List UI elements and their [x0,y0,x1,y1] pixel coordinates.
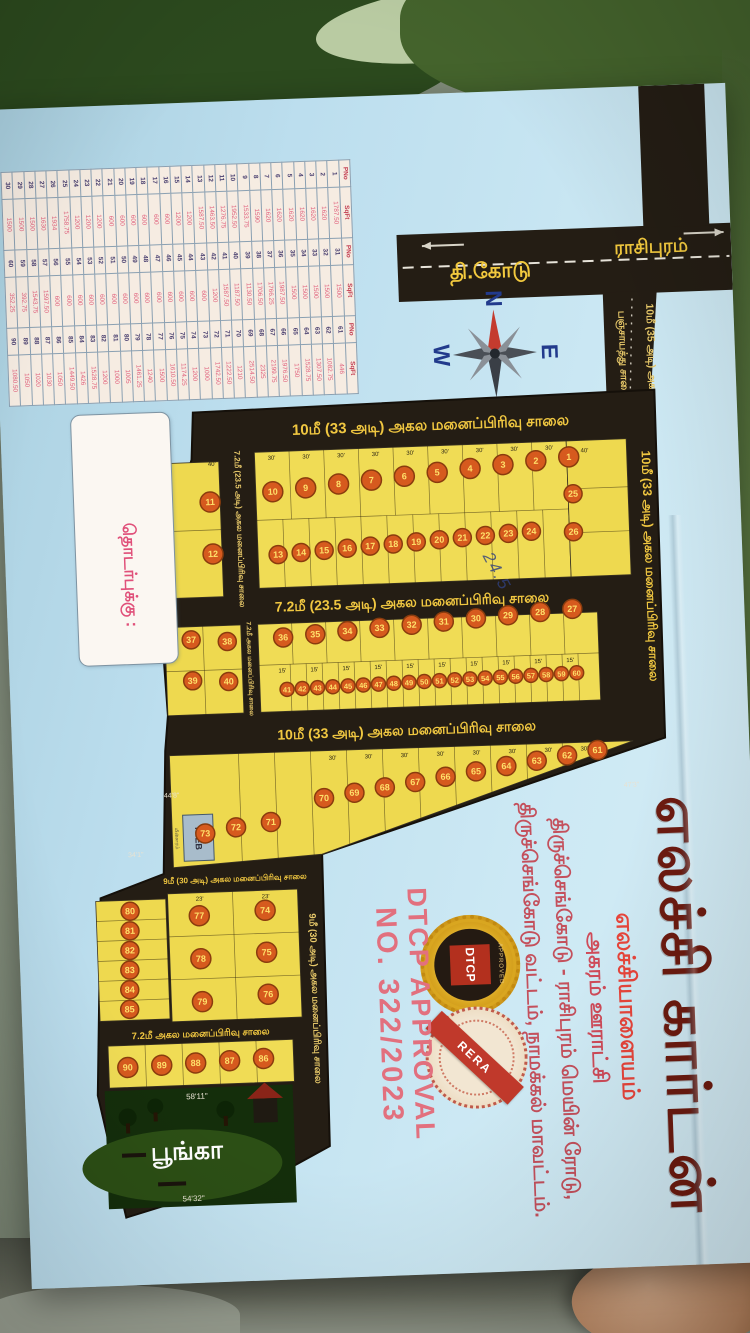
cell-sqft: 446 [334,343,347,394]
cell-plot-no: 59 [15,250,27,277]
cell-sqft: 600 [151,272,164,323]
cell-sqft: 1620 [261,190,274,241]
plot-number: 14 [296,547,306,557]
cell-sqft: 1952.50 [227,191,240,242]
plot-number: 34 [342,626,352,636]
cell-sqft: 1200 [182,192,195,243]
cell-plot-no: 86 [52,326,64,353]
cell-sqft: 600 [95,274,108,325]
plot-dim: 30' [337,453,345,459]
plot-dim: 40' [208,462,216,468]
plot-dim: 15' [406,664,414,670]
rera-seal-icon: RERA [424,1005,530,1111]
cell-sqft: 1449.50 [64,353,77,404]
cell-sqft: 1050 [19,355,32,406]
plot-number: 88 [191,1058,201,1068]
plot-number: 47 [374,680,383,689]
cell-sqft: 1200 [171,193,184,244]
plot-number: 72 [231,822,241,832]
plot-number: 90 [123,1062,133,1072]
plot-number: 10 [268,487,278,497]
plot-dim: 15' [470,661,478,667]
plot-number: 78 [196,954,206,964]
plot-number: 82 [125,945,135,955]
cell-plot-no: 10 [226,164,238,191]
cell-sqft: 1187.50 [230,269,243,320]
plot-number: 9 [303,483,308,493]
plot-number: 19 [411,537,421,547]
plot-number: 53 [466,675,475,684]
plot-number: 44 [328,683,337,692]
cell-plot-no: 7 [260,163,272,190]
plot-number: 21 [457,532,467,542]
cell-sqft: 1500 [331,265,344,316]
plot-number: 59 [557,669,566,678]
cell-sqft: 1307.50 [311,344,324,395]
cell-sqft: 1528.75 [300,344,313,395]
cell-plot-no: 33 [308,239,320,266]
cell-plot-no: 56 [49,248,61,275]
park-dim-bottom: 54'32" [182,1194,205,1204]
cell-plot-no: 34 [296,239,308,266]
cell-sqft: 1620 [294,188,307,239]
cell-sqft: 1587.50 [193,192,206,243]
cell-plot-no: 80 [119,324,131,351]
cell-sqft: 1528.75 [87,352,100,403]
cell-plot-no: 76 [164,322,176,349]
cell-sqft: 600 [196,270,209,321]
plot-number: 84 [125,985,135,995]
cell-sqft: 600 [137,194,150,245]
cell-plot-no: 47 [150,245,162,272]
cell-plot-no: 6 [271,162,283,189]
cell-sqft: 600 [162,271,175,322]
plot-number: 40 [224,676,234,686]
contact-label: தொடர்புக்கு : [115,495,143,656]
cell-sqft: 1620 [306,188,319,239]
compass-e: E [537,343,564,359]
plot-dim: 23' [196,897,204,903]
cell-plot-no: 28 [24,171,36,198]
cell-sqft: 1500 [25,198,38,249]
plot-dim: 15' [342,666,350,672]
cell-sqft: 1000 [109,351,122,402]
cell-sqft: 600 [106,273,119,324]
cell-plot-no: 55 [60,248,72,275]
cell-sqft: 1500 [2,199,15,250]
plot-table: PNoSqFtPNoSqFtPNoSqFt11787.5031150061446… [0,159,358,407]
plot-number: 57 [527,671,536,680]
plot-dim: 30' [476,448,484,454]
cell-sqft: 1005 [120,351,133,402]
plot-number: 22 [480,530,490,540]
cell-sqft: 1500 [309,266,322,317]
cell-sqft: 600 [185,270,198,321]
plot-number: 50 [420,677,429,686]
cell-plot-no: 18 [136,167,148,194]
cell-sqft: 1610.50 [165,349,178,400]
cell-plot-no: 12 [204,165,216,192]
cell-plot-no: 90 [7,328,19,355]
table-header: PNo [341,238,353,265]
cell-sqft: 1620 [283,189,296,240]
cell-plot-no: 66 [277,318,289,345]
cell-sqft: 1533.75 [238,190,251,241]
dtcp-seal-text: DTCP [450,944,491,985]
cell-plot-no: 74 [187,321,199,348]
park: பூங்கா 58'11" 54'32" [80,1081,297,1210]
cell-sqft: 352.25 [5,277,18,328]
plot-number: 17 [365,541,375,551]
plot-number: 29 [503,610,513,620]
cell-plot-no: 52 [94,247,106,274]
plot-number: 15 [319,545,329,555]
cell-sqft: 1200 [92,196,105,247]
cell-plot-no: 87 [41,327,53,354]
cell-sqft: 1500 [154,350,167,401]
cell-plot-no: 70 [232,320,244,347]
plot-dim: 30' [268,456,276,462]
cell-sqft: 1766.25 [264,268,277,319]
cell-sqft: 600 [50,275,63,326]
plot-dim: 15' [310,667,318,673]
plot-number: 37 [186,635,196,645]
cell-plot-no: 73 [198,321,210,348]
cell-plot-no: 31 [330,238,342,265]
cell-sqft: 1934 [47,197,60,248]
boundary-dim: 44'8" [164,792,180,800]
cell-plot-no: 78 [142,323,154,350]
cell-plot-no: 60 [4,250,16,277]
cell-sqft: 1463.50 [205,192,218,243]
cell-sqft: 1500 [297,266,310,317]
cell-sqft: 1200 [70,197,83,248]
plot-number: 75 [261,947,271,957]
cell-plot-no: 46 [161,244,173,271]
plot-number: 32 [406,620,416,630]
cell-sqft: 1240 [143,350,156,401]
cell-plot-no: 32 [319,238,331,265]
cell-sqft: 1620 [317,188,330,239]
cell-plot-no: 21 [102,168,114,195]
cell-plot-no: 53 [83,247,95,274]
cell-plot-no: 57 [38,249,50,276]
table-header: PNo [344,316,356,343]
cell-plot-no: 30 [1,172,13,199]
cell-sqft: 2325 [255,346,268,397]
cell-plot-no: 64 [299,317,311,344]
cell-plot-no: 82 [97,325,109,352]
plot-number: 6 [402,471,407,481]
plot-number: 81 [125,926,135,936]
table-header: PNo [338,160,350,187]
cell-plot-no: 17 [147,167,159,194]
plot-dim: 15' [502,660,510,666]
cell-sqft: 392.75 [16,277,29,328]
compass-w: W [429,344,456,367]
cell-sqft: 1200 [81,196,94,247]
plot-number: 3 [500,460,505,470]
cell-sqft: 1130.50 [241,268,254,319]
cell-sqft: 1210 [233,347,246,398]
plot-number: 13 [273,549,283,559]
plot-number: 86 [258,1053,268,1063]
plot-number: 28 [535,607,545,617]
cell-sqft: 1500 [320,265,333,316]
plot-number: 39 [187,676,197,686]
cell-plot-no: 19 [125,168,137,195]
cell-plot-no: 51 [105,246,117,273]
plot-number: 54 [481,674,490,683]
cell-plot-no: 37 [263,241,275,268]
plot-dim: 30' [329,756,337,762]
cell-sqft: 1082.75 [323,343,336,394]
cell-plot-no: 27 [35,171,47,198]
cell-plot-no: 11 [215,164,227,191]
park-dim-top: 58'11" [186,1092,208,1102]
plot-number: 60 [572,669,581,678]
cell-plot-no: 85 [63,326,75,353]
cell-plot-no: 2 [316,161,328,188]
cell-plot-no: 54 [71,248,83,275]
table-header: SqFt [345,343,358,394]
cell-sqft: 1587.50 [219,269,232,320]
plot-number: 7 [369,475,374,485]
cell-plot-no: 4 [293,161,305,188]
plot-number: 1 [566,452,571,462]
plot-number: 25 [568,489,578,499]
access-road-upper [638,84,709,228]
cell-sqft: 1543.75 [28,276,41,327]
plot-number: 27 [567,604,577,614]
cell-plot-no: 25 [57,170,69,197]
cell-plot-no: 35 [285,240,297,267]
cell-plot-no: 8 [249,163,261,190]
cell-plot-no: 3 [305,161,317,188]
cell-plot-no: 68 [254,319,266,346]
plot-number: 70 [319,793,329,803]
cell-plot-no: 79 [131,323,143,350]
cell-sqft: 600 [129,272,142,323]
cell-plot-no: 72 [209,321,221,348]
plot-number: 48 [389,679,398,688]
cell-plot-no: 44 [184,243,196,270]
cell-sqft: 1050 [53,353,66,404]
plot-number: 42 [298,684,307,693]
cell-plot-no: 40 [229,242,241,269]
cell-sqft: 1174.25 [177,349,190,400]
plot-number: 18 [388,539,398,549]
layout-document: தி.கோடு ராசிபுரம் 10மீ (35 அடி) அகல பஞ்ச… [0,83,750,1289]
table-header: SqFt [339,187,352,238]
cell-sqft: 1742.50 [210,348,223,399]
cell-sqft: 600 [160,193,173,244]
cell-plot-no: 62 [322,316,334,343]
plot-number: 23 [503,528,513,538]
cell-sqft: 600 [126,195,139,246]
plot-number: 4 [467,463,472,473]
approval-text: DTCP APPROVAL NO. 322/2023 [363,756,446,1273]
cell-plot-no: 89 [18,328,30,355]
plot-dim: 30' [545,445,553,451]
cell-plot-no: 88 [29,327,41,354]
cell-plot-no: 43 [195,243,207,270]
cell-sqft: 1500 [13,199,26,250]
road-label-rasipuram: ராசிபுரம் [614,235,689,259]
plot-number: 38 [222,636,232,646]
plot-number: 85 [124,1004,134,1014]
plot-number: 16 [342,543,352,553]
cell-plot-no: 77 [153,323,165,350]
cell-plot-no: 26 [46,170,58,197]
plot-number: 83 [125,965,135,975]
plot-number: 87 [224,1056,234,1066]
boundary-dim: 34'1" [128,852,144,860]
cell-plot-no: 20 [114,168,126,195]
plot-number: 49 [405,678,414,687]
cell-sqft: 1597.50 [39,276,52,327]
cell-plot-no: 45 [173,244,185,271]
cell-sqft: 1461.25 [132,350,145,401]
plot-number: 55 [496,673,505,682]
cell-plot-no: 81 [108,324,120,351]
cell-sqft: 1200 [98,352,111,403]
cell-sqft: 1758.75 [58,197,71,248]
cell-plot-no: 23 [80,169,92,196]
cell-plot-no: 50 [116,246,128,273]
cell-sqft: 1706.50 [252,268,265,319]
plot-number: 58 [542,670,551,679]
plot-dim: 30' [372,452,380,458]
cell-plot-no: 41 [218,242,230,269]
plot-dim: 30' [406,451,414,457]
cell-plot-no: 84 [74,325,86,352]
plot-number: 41 [283,685,292,694]
cell-sqft: 1222.50 [221,347,234,398]
plot-number: 45 [344,682,353,691]
plot-number: 73 [200,828,210,838]
cell-sqft: 1590 [250,190,263,241]
cell-sqft: 1426 [75,352,88,403]
cell-sqft: 1000 [199,348,212,399]
plot-number: 74 [260,905,270,915]
plot-number: 51 [435,676,444,685]
plot-number: 12 [208,549,218,559]
plot-number: 2 [533,456,538,466]
cell-plot-no: 36 [274,240,286,267]
cell-plot-no: 14 [181,165,193,192]
plot-number: 33 [374,623,384,633]
cell-sqft: 1987.50 [275,267,288,318]
cell-plot-no: 58 [27,249,39,276]
cell-plot-no: 49 [128,245,140,272]
plot-table-block: PNoSqFtPNoSqFtPNoSqFt11787.5031150061446… [0,159,358,407]
contact-box: தொடர்புக்கு : [70,411,179,666]
cell-plot-no: 16 [159,166,171,193]
plot-number: 26 [568,527,578,537]
cell-plot-no: 9 [237,163,249,190]
cell-sqft: 600 [174,271,187,322]
cell-sqft: 1750 [289,345,302,396]
tneb-side-label: மின்சாரம் [173,828,180,850]
plot-number: 71 [266,817,276,827]
plot-number: 52 [450,676,459,685]
cell-sqft: 600 [115,195,128,246]
cell-plot-no: 61 [333,316,345,343]
plot-dim: 23' [262,894,270,900]
plot-dim: 15' [278,668,286,674]
cell-sqft: 2199.75 [266,345,279,396]
cell-sqft: 600 [61,275,74,326]
plot-number: 24 [526,526,536,536]
plot-number: 80 [125,906,135,916]
cell-sqft: 1620 [272,189,285,240]
plot-number: 43 [313,683,322,692]
cell-plot-no: 65 [288,318,300,345]
plot-number: 77 [194,911,204,921]
compass-n: N [481,290,508,308]
plot-number: 35 [310,629,320,639]
cell-sqft: 1080.50 [8,355,21,406]
cell-sqft: 600 [103,195,116,246]
plot-dim: 15' [374,665,382,671]
plot-number: 20 [434,535,444,545]
plot-number: 8 [336,479,341,489]
cell-sqft: 600 [117,273,130,324]
plot-number: 46 [359,681,368,690]
cell-sqft: 600 [84,274,97,325]
cell-plot-no: 39 [240,241,252,268]
cell-sqft: 1787.50 [328,187,341,238]
plot-number: 56 [511,672,520,681]
photo-stage: தி.கோடு ராசிபுரம் 10மீ (35 அடி) அகல பஞ்ச… [0,0,750,1333]
cell-plot-no: 71 [221,320,233,347]
cell-plot-no: 38 [251,241,263,268]
plot-number: 5 [435,467,440,477]
cell-plot-no: 15 [170,166,182,193]
plot-number: 36 [278,632,288,642]
cell-sqft: 600 [148,194,161,245]
plot-dim: 30' [302,454,310,460]
cell-sqft: 1630 [36,198,49,249]
plot-number: 31 [439,616,449,626]
plot-number: 30 [471,613,481,623]
cell-plot-no: 69 [243,319,255,346]
cell-sqft: 1200 [188,348,201,399]
cell-plot-no: 48 [139,245,151,272]
cell-sqft: 2514.50 [244,346,257,397]
plot-dim: 30' [441,449,449,455]
cell-sqft: 1030 [42,354,55,405]
plot-number: 79 [197,996,207,1006]
cell-plot-no: 22 [91,169,103,196]
cell-sqft: 1976.50 [278,345,291,396]
plot-number: 76 [263,989,273,999]
cell-plot-no: 24 [69,170,81,197]
cell-plot-no: 29 [12,172,24,199]
cell-plot-no: 63 [310,317,322,344]
plot-dim: 15' [566,658,574,664]
cell-plot-no: 13 [192,165,204,192]
cell-sqft: 1200 [207,270,220,321]
plot-dim: 30' [510,447,518,453]
plot-number: 89 [157,1060,167,1070]
plot-number: 11 [205,497,215,507]
cell-sqft: 1500 [286,267,299,318]
cell-sqft: 1276.75 [216,191,229,242]
plot-dim: 15' [438,663,446,669]
cell-plot-no: 75 [176,322,188,349]
